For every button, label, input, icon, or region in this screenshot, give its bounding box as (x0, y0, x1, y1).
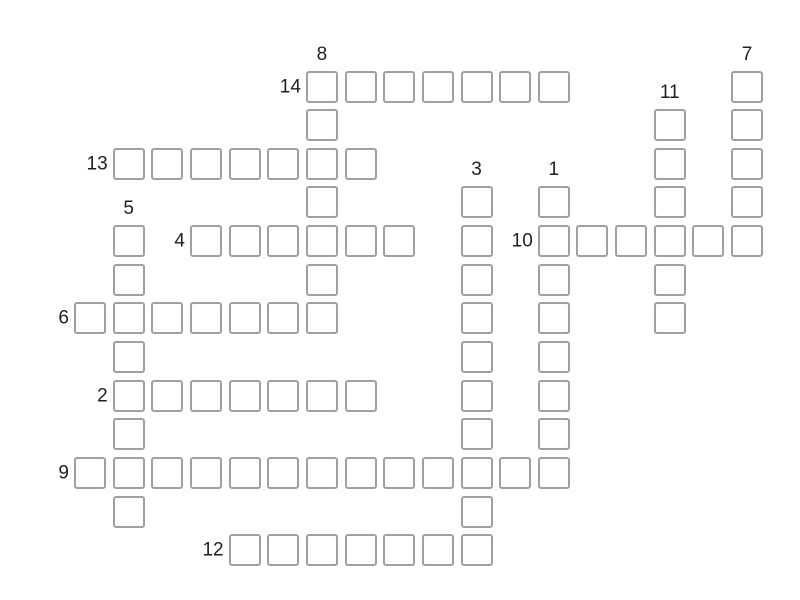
crossword-cell[interactable] (383, 534, 415, 566)
crossword-cell[interactable] (190, 380, 222, 412)
crossword-cell[interactable] (229, 534, 261, 566)
crossword-cell[interactable] (538, 418, 570, 450)
crossword-cell[interactable] (461, 71, 493, 103)
crossword-cell[interactable] (538, 71, 570, 103)
crossword-cell[interactable] (422, 534, 454, 566)
crossword-cell[interactable] (306, 71, 338, 103)
crossword-cell[interactable] (383, 71, 415, 103)
crossword-cell[interactable] (151, 148, 183, 180)
crossword-cell[interactable] (461, 186, 493, 218)
clue-number-2: 2 (97, 386, 108, 405)
clue-number-12: 12 (202, 541, 223, 560)
crossword-cell[interactable] (731, 109, 763, 141)
crossword-cell[interactable] (229, 225, 261, 257)
crossword-cell[interactable] (654, 109, 686, 141)
crossword-cell[interactable] (229, 457, 261, 489)
crossword-cell[interactable] (267, 225, 299, 257)
crossword-cell[interactable] (461, 418, 493, 450)
clue-number-4: 4 (174, 232, 185, 251)
crossword-grid: 1487111331541062912 (0, 0, 800, 600)
crossword-cell[interactable] (113, 496, 145, 528)
crossword-cell[interactable] (229, 380, 261, 412)
crossword-cell[interactable] (113, 148, 145, 180)
clue-number-6: 6 (58, 309, 69, 328)
crossword-cell[interactable] (267, 380, 299, 412)
crossword-cell[interactable] (345, 457, 377, 489)
crossword-cell[interactable] (229, 302, 261, 334)
crossword-cell[interactable] (74, 302, 106, 334)
crossword-cell[interactable] (499, 457, 531, 489)
crossword-cell[interactable] (113, 264, 145, 296)
crossword-cell[interactable] (538, 186, 570, 218)
crossword-cell[interactable] (654, 225, 686, 257)
crossword-cell[interactable] (190, 225, 222, 257)
clue-number-5: 5 (123, 199, 134, 218)
crossword-cell[interactable] (345, 225, 377, 257)
crossword-cell[interactable] (306, 225, 338, 257)
crossword-cell[interactable] (190, 457, 222, 489)
crossword-cell[interactable] (74, 457, 106, 489)
crossword-cell[interactable] (306, 534, 338, 566)
crossword-cell[interactable] (345, 71, 377, 103)
crossword-cell[interactable] (731, 148, 763, 180)
crossword-cell[interactable] (113, 225, 145, 257)
clue-number-7: 7 (742, 45, 753, 64)
crossword-cell[interactable] (692, 225, 724, 257)
crossword-cell[interactable] (383, 457, 415, 489)
crossword-cell[interactable] (190, 302, 222, 334)
crossword-cell[interactable] (345, 534, 377, 566)
crossword-cell[interactable] (538, 302, 570, 334)
clue-number-10: 10 (512, 232, 533, 251)
crossword-cell[interactable] (267, 148, 299, 180)
crossword-cell[interactable] (345, 148, 377, 180)
crossword-cell[interactable] (538, 264, 570, 296)
crossword-cell[interactable] (461, 534, 493, 566)
crossword-cell[interactable] (654, 264, 686, 296)
crossword-cell[interactable] (306, 302, 338, 334)
crossword-cell[interactable] (229, 148, 261, 180)
crossword-cell[interactable] (383, 225, 415, 257)
crossword-cell[interactable] (113, 457, 145, 489)
crossword-cell[interactable] (576, 225, 608, 257)
clue-number-13: 13 (87, 154, 108, 173)
crossword-cell[interactable] (461, 264, 493, 296)
crossword-cell[interactable] (267, 457, 299, 489)
clue-number-8: 8 (317, 45, 328, 64)
crossword-cell[interactable] (306, 380, 338, 412)
crossword-cell[interactable] (461, 380, 493, 412)
crossword-cell[interactable] (538, 341, 570, 373)
crossword-cell[interactable] (499, 71, 531, 103)
crossword-cell[interactable] (461, 457, 493, 489)
crossword-cell[interactable] (654, 302, 686, 334)
crossword-cell[interactable] (113, 380, 145, 412)
crossword-cell[interactable] (151, 457, 183, 489)
crossword-cell[interactable] (190, 148, 222, 180)
crossword-cell[interactable] (306, 264, 338, 296)
crossword-cell[interactable] (422, 457, 454, 489)
crossword-cell[interactable] (654, 148, 686, 180)
crossword-cell[interactable] (306, 148, 338, 180)
crossword-cell[interactable] (422, 71, 454, 103)
crossword-cell[interactable] (151, 302, 183, 334)
clue-number-14: 14 (280, 77, 301, 96)
crossword-cell[interactable] (731, 225, 763, 257)
crossword-cell[interactable] (538, 380, 570, 412)
crossword-cell[interactable] (306, 109, 338, 141)
crossword-cell[interactable] (113, 418, 145, 450)
crossword-cell[interactable] (345, 380, 377, 412)
crossword-cell[interactable] (731, 186, 763, 218)
crossword-cell[interactable] (461, 341, 493, 373)
crossword-cell[interactable] (267, 302, 299, 334)
crossword-cell[interactable] (306, 457, 338, 489)
crossword-cell[interactable] (306, 186, 338, 218)
crossword-cell[interactable] (615, 225, 647, 257)
crossword-cell[interactable] (461, 302, 493, 334)
clue-number-9: 9 (58, 464, 69, 483)
crossword-cell[interactable] (654, 186, 686, 218)
crossword-cell[interactable] (461, 225, 493, 257)
crossword-cell[interactable] (113, 302, 145, 334)
crossword-cell[interactable] (538, 225, 570, 257)
crossword-cell[interactable] (151, 380, 183, 412)
clue-number-3: 3 (471, 160, 482, 179)
crossword-cell[interactable] (538, 457, 570, 489)
crossword-cell[interactable] (267, 534, 299, 566)
crossword-cell[interactable] (113, 341, 145, 373)
clue-number-11: 11 (660, 83, 680, 102)
crossword-cell[interactable] (461, 496, 493, 528)
crossword-cell[interactable] (731, 71, 763, 103)
clue-number-1: 1 (549, 160, 560, 179)
